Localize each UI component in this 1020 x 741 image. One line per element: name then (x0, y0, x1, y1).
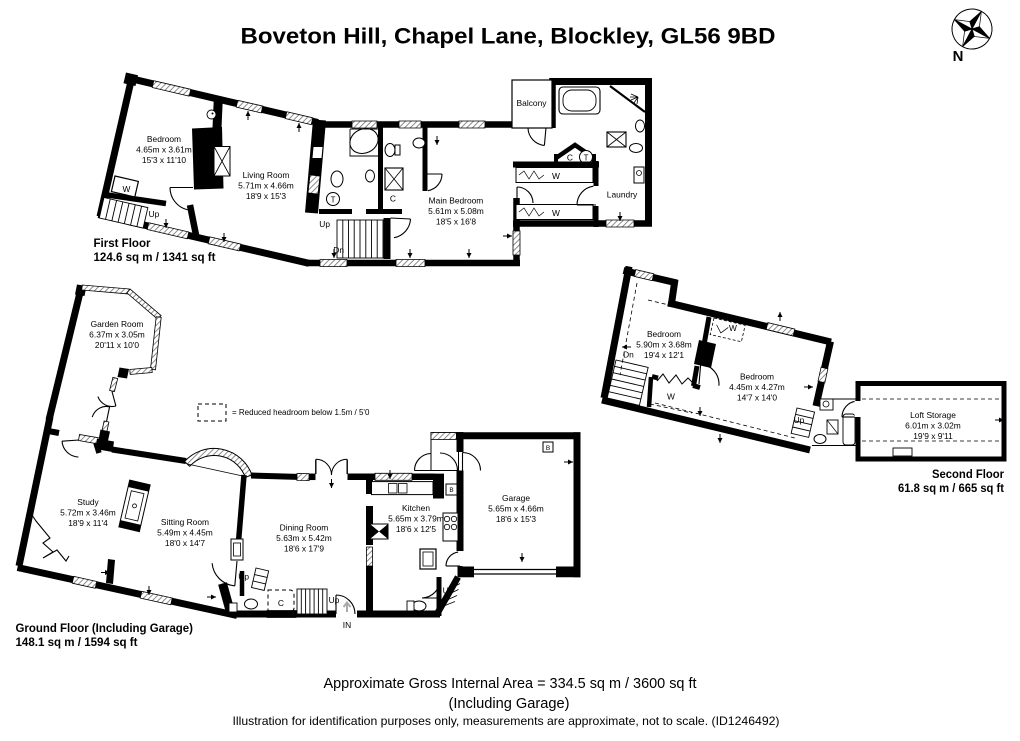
svg-text:Bedroom: Bedroom (740, 372, 774, 382)
svg-text:Bedroom: Bedroom (647, 329, 681, 339)
svg-text:Up: Up (443, 586, 454, 596)
svg-text:B: B (546, 445, 550, 452)
svg-text:5.72m x 3.46m: 5.72m x 3.46m (60, 508, 116, 518)
svg-text:T: T (331, 196, 336, 205)
svg-text:5.90m x 3.68m: 5.90m x 3.68m (636, 340, 692, 350)
svg-text:Laundry: Laundry (607, 190, 638, 200)
svg-text:Loft Storage: Loft Storage (910, 410, 956, 420)
svg-text:Up: Up (329, 595, 340, 605)
svg-text:Illustration for identificatio: Illustration for identification purposes… (233, 714, 780, 728)
svg-text:Ground Floor (Including Garage: Ground Floor (Including Garage) (16, 621, 194, 635)
svg-text:Up: Up (149, 209, 160, 219)
svg-text:4.45m x 4.27m: 4.45m x 4.27m (729, 382, 785, 392)
svg-text:18'6 x 15'3: 18'6 x 15'3 (496, 514, 536, 524)
svg-text:= Reduced headroom below 1.5m: = Reduced headroom below 1.5m / 5'0 (232, 408, 370, 417)
svg-text:W: W (552, 171, 560, 181)
svg-text:6.37m x 3.05m: 6.37m x 3.05m (89, 330, 145, 340)
svg-text:5.61m x 5.08m: 5.61m x 5.08m (428, 206, 484, 216)
svg-text:4.65m x 3.61m: 4.65m x 3.61m (136, 145, 192, 155)
svg-text:W: W (552, 208, 560, 218)
svg-text:Up: Up (794, 415, 805, 425)
svg-text:5.65m x 4.66m: 5.65m x 4.66m (488, 504, 544, 514)
svg-text:W: W (667, 392, 675, 402)
svg-text:Approximate Gross Internal Are: Approximate Gross Internal Area = 334.5 … (324, 676, 697, 692)
svg-text:N: N (953, 48, 964, 65)
svg-text:18'0 x 14'7: 18'0 x 14'7 (165, 538, 205, 548)
svg-text:18'6 x 17'9: 18'6 x 17'9 (284, 544, 324, 554)
svg-text:Sitting Room: Sitting Room (161, 517, 209, 527)
svg-text:Garden Room: Garden Room (91, 319, 144, 329)
svg-text:Dn: Dn (623, 350, 634, 360)
svg-text:61.8 sq m / 665 sq ft: 61.8 sq m / 665 sq ft (898, 481, 1004, 495)
svg-text:C: C (278, 598, 284, 608)
svg-text:Study: Study (77, 497, 99, 507)
svg-text:124.6 sq m / 1341 sq ft: 124.6 sq m / 1341 sq ft (94, 250, 216, 264)
svg-text:C: C (390, 194, 396, 204)
svg-text:15'3 x 11'10: 15'3 x 11'10 (142, 155, 186, 165)
svg-text:14'7 x 14'0: 14'7 x 14'0 (737, 393, 777, 403)
svg-text:18'9 x 15'3: 18'9 x 15'3 (246, 191, 286, 201)
svg-text:Main Bedroom: Main Bedroom (429, 196, 484, 206)
svg-text:Kitchen: Kitchen (402, 503, 430, 513)
svg-text:5.49m x 4.45m: 5.49m x 4.45m (157, 528, 213, 538)
svg-text:Up: Up (319, 219, 330, 229)
svg-text:Boveton Hill, Chapel Lane, Blo: Boveton Hill, Chapel Lane, Blockley, GL5… (241, 24, 776, 49)
svg-text:18'5 x 16'8: 18'5 x 16'8 (436, 217, 476, 227)
svg-text:IN: IN (343, 620, 351, 630)
svg-text:Up: Up (238, 572, 249, 582)
svg-text:B: B (449, 487, 453, 494)
svg-text:Bedroom: Bedroom (147, 134, 181, 144)
svg-text:148.1 sq m / 1594 sq ft: 148.1 sq m / 1594 sq ft (16, 635, 138, 649)
svg-text:19'9 x 9'11: 19'9 x 9'11 (913, 431, 953, 441)
svg-text:19'4 x 12'1: 19'4 x 12'1 (644, 350, 684, 360)
svg-text:W: W (123, 184, 131, 194)
svg-text:6.01m x 3.02m: 6.01m x 3.02m (905, 421, 961, 431)
svg-text:Second Floor: Second Floor (932, 467, 1004, 481)
svg-text:C: C (567, 153, 573, 163)
svg-text:Garage: Garage (502, 493, 530, 503)
svg-text:5.63m x 5.42m: 5.63m x 5.42m (276, 533, 332, 543)
svg-text:T: T (584, 154, 589, 163)
svg-text:Dining Room: Dining Room (280, 523, 329, 533)
svg-text:Balcony: Balcony (517, 98, 548, 108)
svg-text:20'11 x 10'0: 20'11 x 10'0 (95, 340, 139, 350)
svg-text:5.65m x 3.79m: 5.65m x 3.79m (388, 514, 444, 524)
svg-text:18'6 x 12'5: 18'6 x 12'5 (396, 524, 436, 534)
svg-text:First Floor: First Floor (94, 236, 151, 250)
svg-text:(Including Garage): (Including Garage) (449, 696, 570, 712)
svg-text:W: W (729, 323, 737, 333)
svg-text:Living Room: Living Room (243, 170, 290, 180)
svg-text:5.71m x 4.66m: 5.71m x 4.66m (238, 181, 294, 191)
svg-text:18'9 x 11'4: 18'9 x 11'4 (68, 518, 108, 528)
